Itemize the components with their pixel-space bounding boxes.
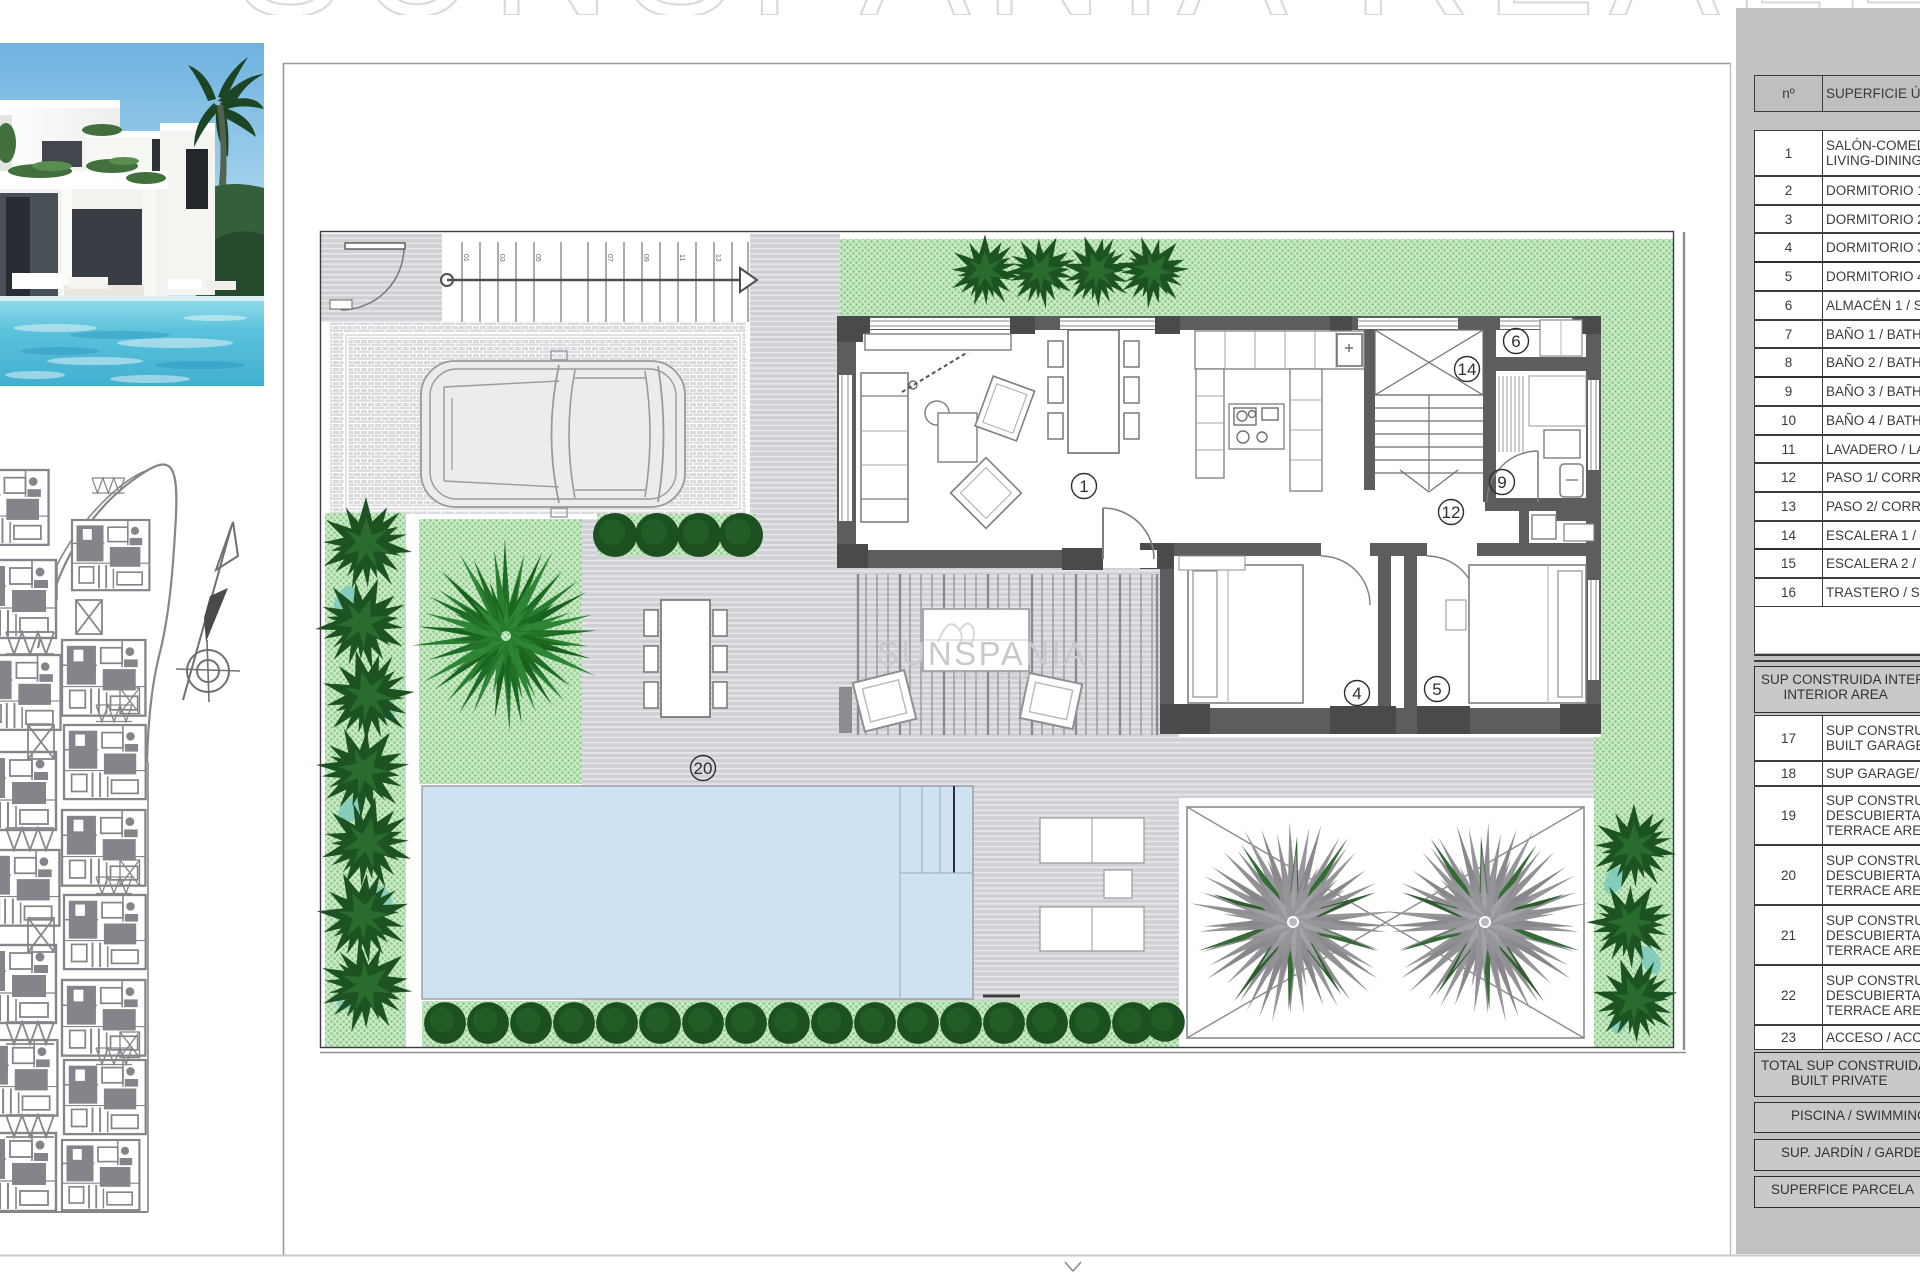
svg-text:11: 11 xyxy=(678,254,685,261)
svg-text:5: 5 xyxy=(1432,680,1441,699)
svg-text:07: 07 xyxy=(606,254,613,262)
svg-text:14: 14 xyxy=(1458,360,1477,379)
svg-text:05: 05 xyxy=(534,254,541,262)
svg-text:Real estate: Real estate xyxy=(955,669,1032,683)
svg-text:6: 6 xyxy=(1511,332,1520,351)
svg-text:1: 1 xyxy=(1079,477,1088,496)
svg-text:01: 01 xyxy=(462,254,469,262)
svg-text:9: 9 xyxy=(1497,473,1506,492)
svg-text:4: 4 xyxy=(1352,684,1361,703)
svg-text:13: 13 xyxy=(714,254,721,262)
svg-text:SUNSPANIA: SUNSPANIA xyxy=(877,635,1088,672)
svg-text:20: 20 xyxy=(694,759,713,778)
svg-text:03: 03 xyxy=(498,254,505,262)
svg-text:09: 09 xyxy=(642,254,649,262)
svg-text:12: 12 xyxy=(1442,503,1461,522)
